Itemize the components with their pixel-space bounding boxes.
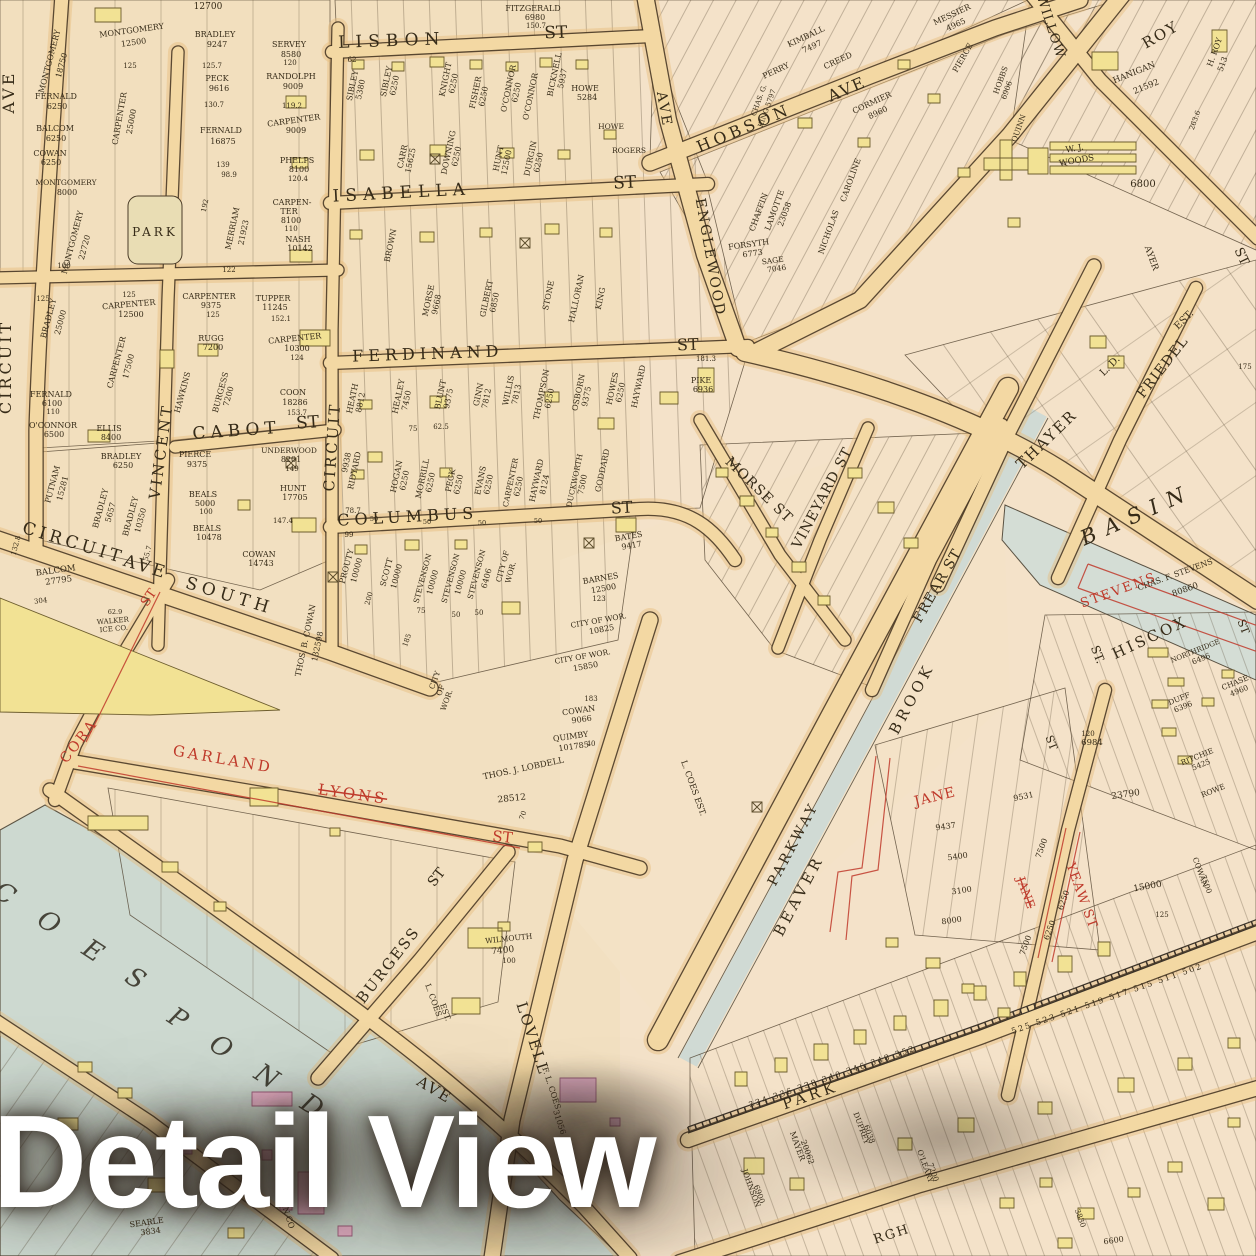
map-label: 75: [409, 425, 418, 433]
map-label: TER: [280, 207, 298, 216]
map-label: RANDOLPH: [266, 72, 315, 81]
map-label: ST: [544, 23, 568, 44]
map-label: CIRCUIT: [0, 320, 15, 414]
map-label: 40: [587, 740, 596, 748]
map-label: 8100: [281, 216, 301, 225]
map-label: PIERCE: [179, 450, 212, 459]
map-label: 110: [284, 225, 297, 233]
map-label: 130.7: [204, 101, 224, 109]
map-label: 8580: [281, 50, 301, 59]
map-label: 62: [348, 56, 357, 64]
map-label: UNDERWOOD: [261, 446, 317, 455]
map-label: ELLIS: [96, 424, 121, 433]
road-circuit-east: [332, 28, 338, 650]
map-label: 153.7: [287, 409, 307, 417]
map-label: 147.4: [273, 517, 294, 525]
map-label: 50: [478, 519, 486, 527]
map-label: ST: [613, 172, 638, 193]
map-label: 8000: [57, 188, 77, 197]
map-label: PARK: [132, 225, 178, 239]
map-label: 99: [345, 531, 354, 539]
map-label: 62.9: [108, 608, 122, 616]
map-label: ST: [677, 335, 700, 355]
map-label: 160: [57, 262, 70, 270]
map-label: 6100: [42, 399, 62, 408]
map-label: PECK: [205, 74, 229, 83]
map-label: 6250: [46, 134, 66, 143]
map-label: 5284: [577, 93, 597, 102]
map-label: COON: [280, 388, 306, 397]
map-label: 17705: [282, 493, 307, 502]
map-label: 110: [46, 408, 59, 416]
map-label: 181.3: [696, 355, 716, 363]
map-label: 149: [285, 465, 298, 473]
map-label: 12500: [118, 310, 143, 319]
map-label: 6980: [525, 13, 545, 22]
map-label: 150.7: [526, 22, 546, 30]
map-label: 120: [1081, 730, 1094, 738]
map-label: 125: [36, 295, 49, 303]
map-label: 100: [199, 508, 212, 516]
map-label: 6250: [113, 461, 133, 470]
map-label: 78.7: [345, 507, 361, 515]
map-label: 62.5: [433, 423, 449, 431]
map-label: 125.7: [202, 62, 222, 70]
map-label: 120.4: [288, 175, 309, 183]
map-label: FERNALD: [35, 92, 77, 101]
map-label: 16875: [210, 137, 235, 146]
map-label: FERNALD: [30, 390, 72, 399]
map-label: 8201: [281, 455, 301, 464]
map-label: 152.1: [271, 315, 291, 323]
map-label: 98.9: [221, 171, 237, 179]
map-label: PIKE: [691, 376, 712, 385]
map-label: BEALS: [189, 490, 217, 499]
map-label: 125: [122, 291, 135, 299]
map-label: 50: [534, 517, 542, 525]
map-label: FITZGERALD: [505, 4, 560, 13]
map-label: 124: [290, 354, 304, 362]
map-label: 9009: [286, 126, 306, 135]
map-label: 125: [123, 62, 136, 70]
map-label: MONTGOMERY: [35, 178, 97, 187]
map-label: 7200: [203, 343, 223, 352]
map-label: CARPEN-: [273, 198, 312, 207]
map-label: BEALS: [193, 524, 221, 533]
map-label: 119.2: [282, 102, 302, 110]
map-label: 18286: [282, 398, 307, 407]
map-label: 9375: [187, 460, 207, 469]
atlas-map-page: AVECIRCUITVINCENTCIRCUITCABOTSTPARKLISBO…: [0, 0, 1256, 1256]
map-label: 122: [222, 266, 235, 274]
map-label: LISBON: [338, 29, 446, 53]
map-label: HUNT: [280, 484, 307, 493]
map-label: HOWE: [571, 84, 599, 93]
map-label: NASH: [285, 235, 310, 244]
map-label: 9616: [209, 84, 229, 93]
map-label: AVE: [0, 71, 18, 115]
map-label: FERNALD: [200, 126, 242, 135]
map-label: 6984: [1081, 738, 1103, 748]
map-label: RUGG: [198, 334, 224, 343]
map-label: 11245: [262, 303, 287, 312]
map-label: ST: [491, 827, 513, 847]
map-label: 125: [1155, 911, 1168, 919]
map-label: 8400: [101, 433, 121, 442]
map-label: 75: [417, 607, 426, 615]
detail-view-watermark: Detail View: [0, 1096, 654, 1228]
map-label: 10142: [287, 244, 312, 253]
map-label: 50: [423, 518, 431, 526]
map-label: 125: [206, 311, 219, 319]
map-label: BRADLEY: [195, 30, 236, 39]
map-label: 50: [370, 515, 378, 523]
map-label: 6936: [693, 385, 713, 394]
map-label: TUPPER: [256, 294, 292, 303]
map-label: 5000: [195, 499, 215, 508]
map-label: 9247: [207, 40, 227, 49]
map-label: 10478: [196, 533, 221, 542]
map-label: 139: [216, 161, 229, 169]
map-label: 50: [452, 611, 461, 619]
map-label: 175: [1238, 363, 1251, 371]
map-label: 6800: [1130, 179, 1155, 190]
map-label: ST: [610, 497, 633, 517]
map-label: SERVEY: [272, 40, 307, 49]
map-label: 183: [584, 695, 597, 703]
map-label: 14743: [248, 559, 273, 568]
map-label: 12700: [194, 2, 223, 12]
map-label: BALCOM: [36, 124, 74, 133]
map-label: PHELPS: [280, 156, 314, 165]
map-label: 10300: [284, 344, 309, 353]
map-label: 6250: [47, 102, 67, 111]
map-label: HOWE: [598, 122, 624, 131]
map-label: 9375: [201, 301, 221, 310]
map-label: BRADLEY: [101, 452, 142, 461]
map-label: 100: [502, 957, 515, 965]
map-label: 8100: [289, 165, 309, 174]
map-label: COWAN: [33, 149, 66, 158]
map-label: 6250: [41, 158, 61, 167]
map-label: 50: [475, 609, 484, 617]
map-label: COWAN: [242, 550, 275, 559]
map-label: ROGERS: [612, 146, 646, 155]
map-label: 123: [592, 595, 605, 603]
map-label: 120: [283, 59, 296, 67]
map-label: O'CONNOR: [29, 421, 78, 430]
map-label: 9009: [283, 82, 303, 91]
map-label: 6500: [44, 430, 64, 439]
map-label: CARPENTER: [182, 292, 236, 301]
atlas-map: AVECIRCUITVINCENTCIRCUITCABOTSTPARKLISBO…: [0, 0, 1256, 1256]
